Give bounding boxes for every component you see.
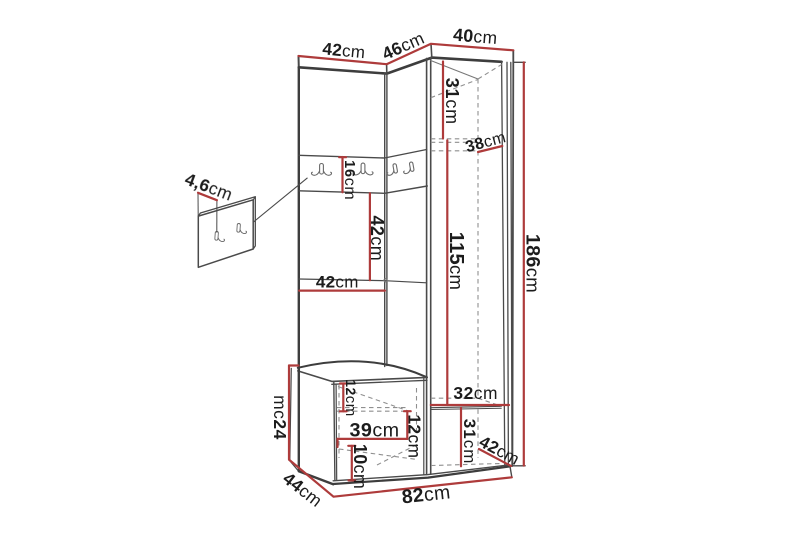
svg-text:32cm: 32cm <box>453 383 498 403</box>
svg-text:42cm: 42cm <box>316 272 359 291</box>
svg-text:16cm: 16cm <box>341 160 358 200</box>
svg-text:44cm: 44cm <box>279 468 326 511</box>
svg-text:40cm: 40cm <box>452 25 498 48</box>
svg-text:12cm: 12cm <box>342 379 359 417</box>
svg-text:46cm: 46cm <box>379 28 427 64</box>
svg-text:mc24: mc24 <box>270 395 290 440</box>
svg-text:115cm: 115cm <box>445 232 467 290</box>
svg-text:42cm: 42cm <box>322 38 367 62</box>
svg-text:38cm: 38cm <box>464 128 508 156</box>
svg-text:31cm: 31cm <box>442 78 462 125</box>
svg-text:39cm: 39cm <box>350 419 400 441</box>
svg-text:186cm: 186cm <box>522 234 544 293</box>
svg-text:12cm: 12cm <box>405 414 425 458</box>
svg-text:31cm: 31cm <box>460 419 479 465</box>
svg-text:10cm: 10cm <box>350 444 370 489</box>
svg-text:82cm: 82cm <box>401 481 452 508</box>
svg-text:42cm: 42cm <box>367 215 387 261</box>
svg-text:4,6cm: 4,6cm <box>182 169 235 205</box>
